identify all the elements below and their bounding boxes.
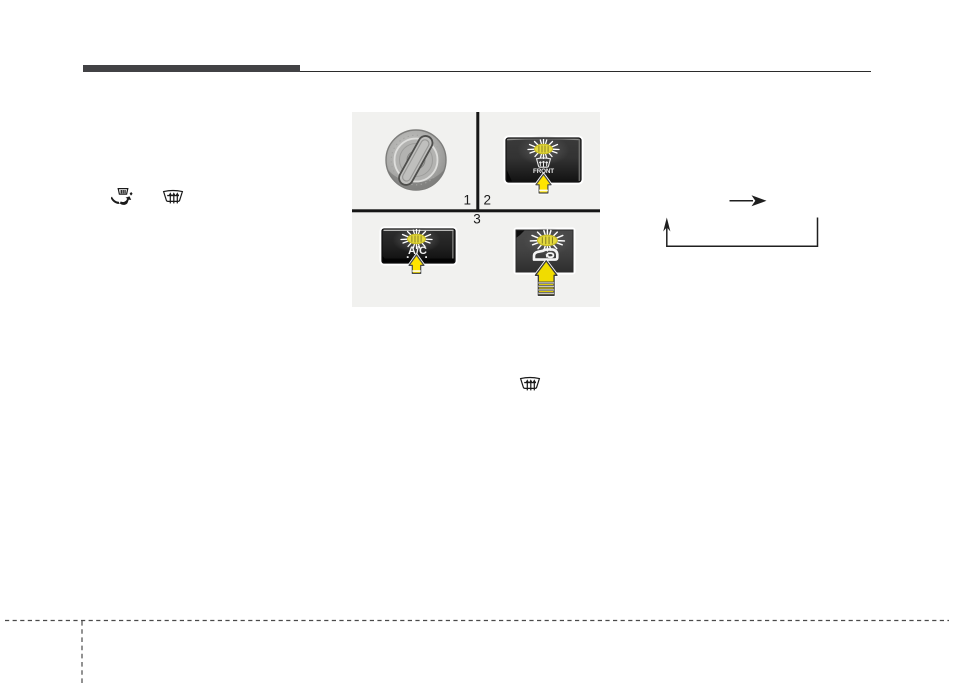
svg-text:3: 3 — [473, 212, 481, 227]
svg-text:1: 1 — [463, 193, 471, 208]
svg-text:2: 2 — [484, 193, 492, 208]
